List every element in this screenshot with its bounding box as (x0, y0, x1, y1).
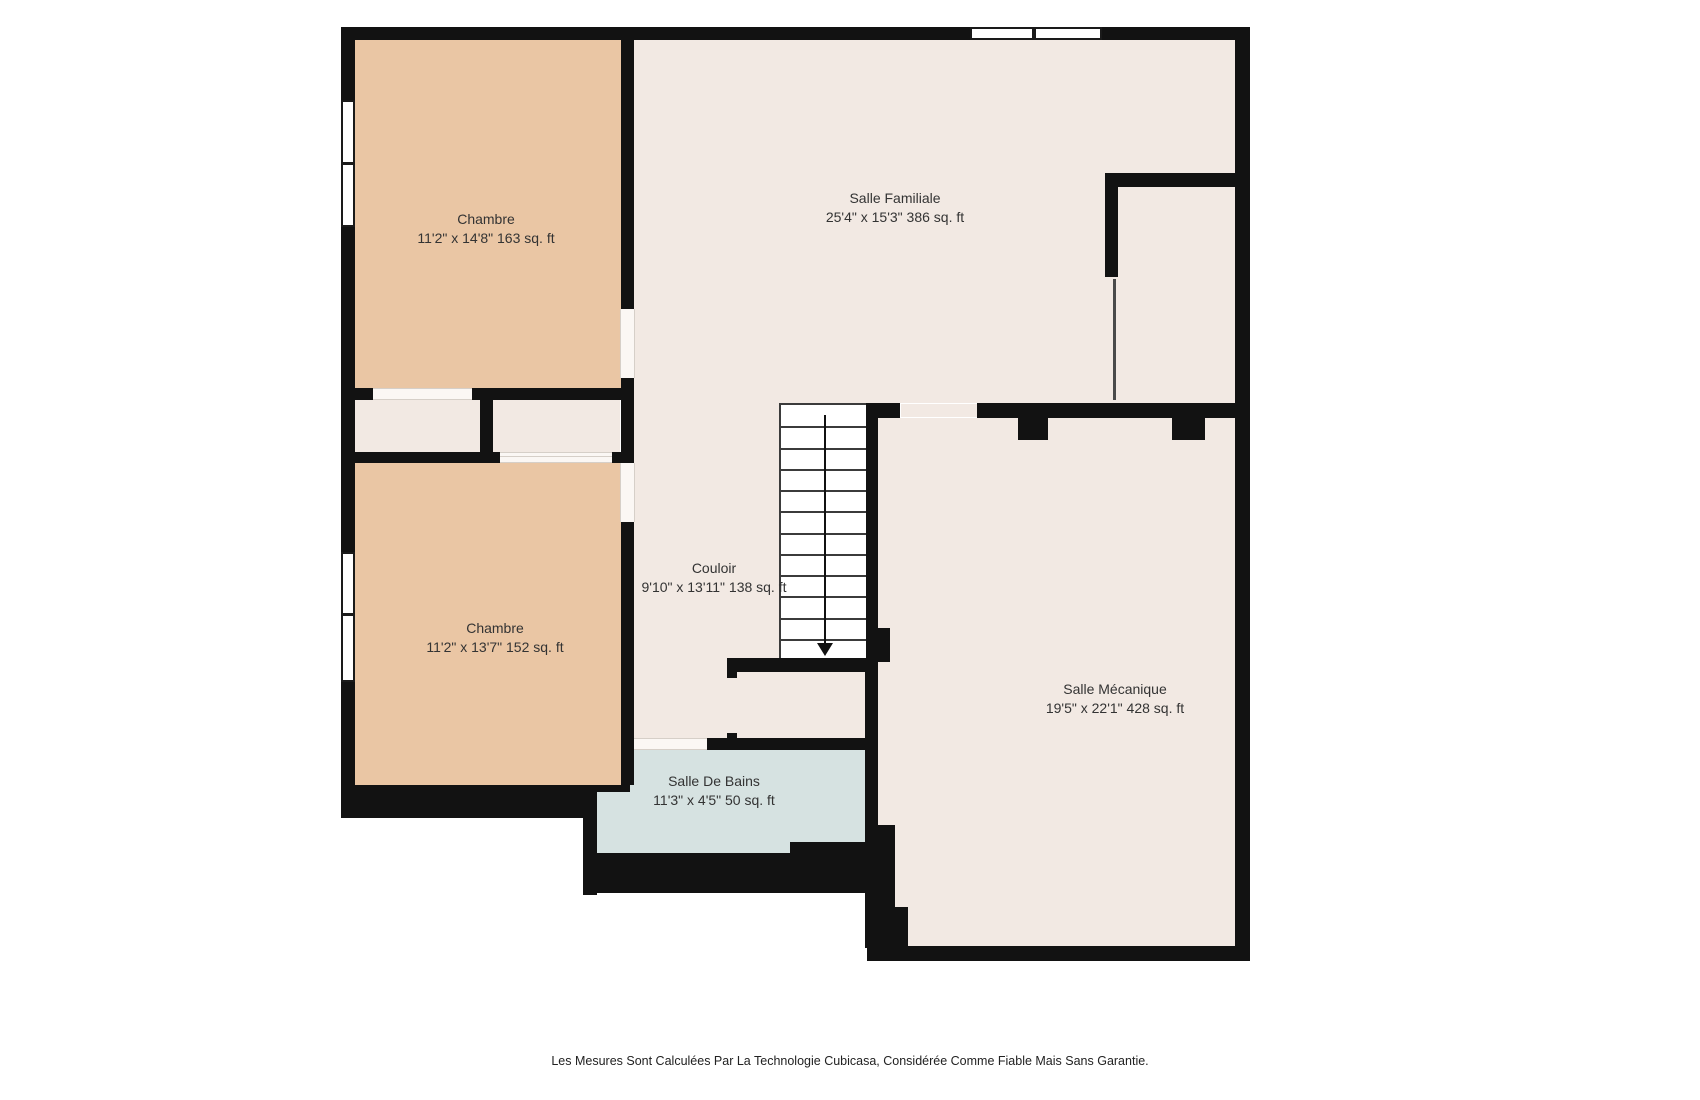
room-name: Chambre (336, 210, 636, 229)
floor-plan-canvas: Chambre 11'2" x 14'8" 163 sq. ft Salle F… (0, 0, 1700, 1100)
room-label-couloir: Couloir 9'10" x 13'11" 138 sq. ft (564, 559, 864, 597)
door-chambre-2-entry (620, 463, 635, 522)
door-closet-tr-leaf (1113, 279, 1116, 400)
wall-mecanique-top-left (867, 403, 900, 418)
room-name: Couloir (564, 559, 864, 578)
window-chambre-1-upper (341, 100, 355, 164)
wall-closet-bottom-left (341, 452, 500, 463)
room-label-chambre-2: Chambre 11'2" x 13'7" 152 sq. ft (345, 619, 645, 657)
room-dimensions: 11'3" x 4'5" 50 sq. ft (564, 791, 864, 810)
window-chambre-2-upper (341, 552, 355, 615)
room-dimensions: 9'10" x 13'11" 138 sq. ft (564, 578, 864, 597)
wall-closet-bottom-right (612, 452, 634, 463)
wall-chambre1-right-upper (621, 40, 634, 309)
room-label-salle-de-bains: Salle De Bains 11'3" x 4'5" 50 sq. ft (564, 772, 864, 810)
door-chambre-1-closet (373, 388, 472, 400)
room-name: Salle Mécanique (965, 680, 1265, 699)
wall-chambre2-bottom-band (341, 785, 583, 818)
wall-mecanique-top-right (977, 403, 1237, 418)
wall-stairwell-bottom (728, 658, 867, 672)
room-dimensions: 11'2" x 13'7" 152 sq. ft (345, 638, 645, 657)
under-stairs-vestibule-floor (737, 672, 865, 738)
room-name: Salle De Bains (564, 772, 864, 791)
wall-closet-tr-left (1105, 187, 1118, 277)
sliding-door-track-line (500, 456, 612, 457)
wall-vestibule-left-lower (727, 733, 737, 750)
room-name: Chambre (345, 619, 645, 638)
door-closet-right-sliding (500, 452, 612, 463)
room-dimensions: 11'2" x 14'8" 163 sq. ft (336, 229, 636, 248)
wall-mecanique-left (865, 403, 878, 828)
wall-chambre1-bottom-right (472, 388, 634, 400)
room-label-salle-familiale: Salle Familiale 25'4" x 15'3" 386 sq. ft (745, 189, 1045, 227)
closet-left-floor (355, 400, 480, 452)
stairs-direction-line (824, 415, 826, 643)
closet-right-floor (493, 400, 620, 452)
room-dimensions: 19'5" x 22'1" 428 sq. ft (965, 699, 1265, 718)
room-label-salle-mecanique: Salle Mécanique 19'5" x 22'1" 428 sq. ft (965, 680, 1265, 718)
measurement-disclaimer: Les Mesures Sont Calculées Par La Techno… (0, 1054, 1700, 1068)
room-dimensions: 25'4" x 15'3" 386 sq. ft (745, 208, 1045, 227)
wall-mecanique-pillar-2 (1172, 418, 1205, 440)
window-salle-familiale-right (1034, 27, 1102, 40)
wall-mecanique-left-thick (865, 825, 895, 948)
wall-mecanique-left-bump (878, 628, 890, 662)
stairs (779, 403, 866, 658)
door-salle-mecanique (901, 404, 977, 417)
wall-bath-bottom-step (790, 842, 867, 853)
room-name: Salle Familiale (745, 189, 1045, 208)
stairs-down-arrow-icon (817, 643, 833, 656)
wall-closet-tr-top (1105, 173, 1235, 187)
window-salle-familiale-left (970, 27, 1034, 40)
wall-mecanique-bottom (867, 946, 1250, 961)
wall-mecanique-pillar-1 (1018, 418, 1048, 440)
door-salle-de-bains (634, 738, 707, 750)
wall-bath-bottom-band (597, 853, 867, 893)
wall-exterior-top (341, 27, 1247, 40)
wall-mecanique-left-step (895, 907, 908, 948)
wall-exterior-right (1235, 27, 1250, 961)
wall-chambre1-bottom-left (341, 388, 373, 400)
room-label-chambre-1: Chambre 11'2" x 14'8" 163 sq. ft (336, 210, 636, 248)
door-chambre-1-entry (620, 309, 635, 378)
